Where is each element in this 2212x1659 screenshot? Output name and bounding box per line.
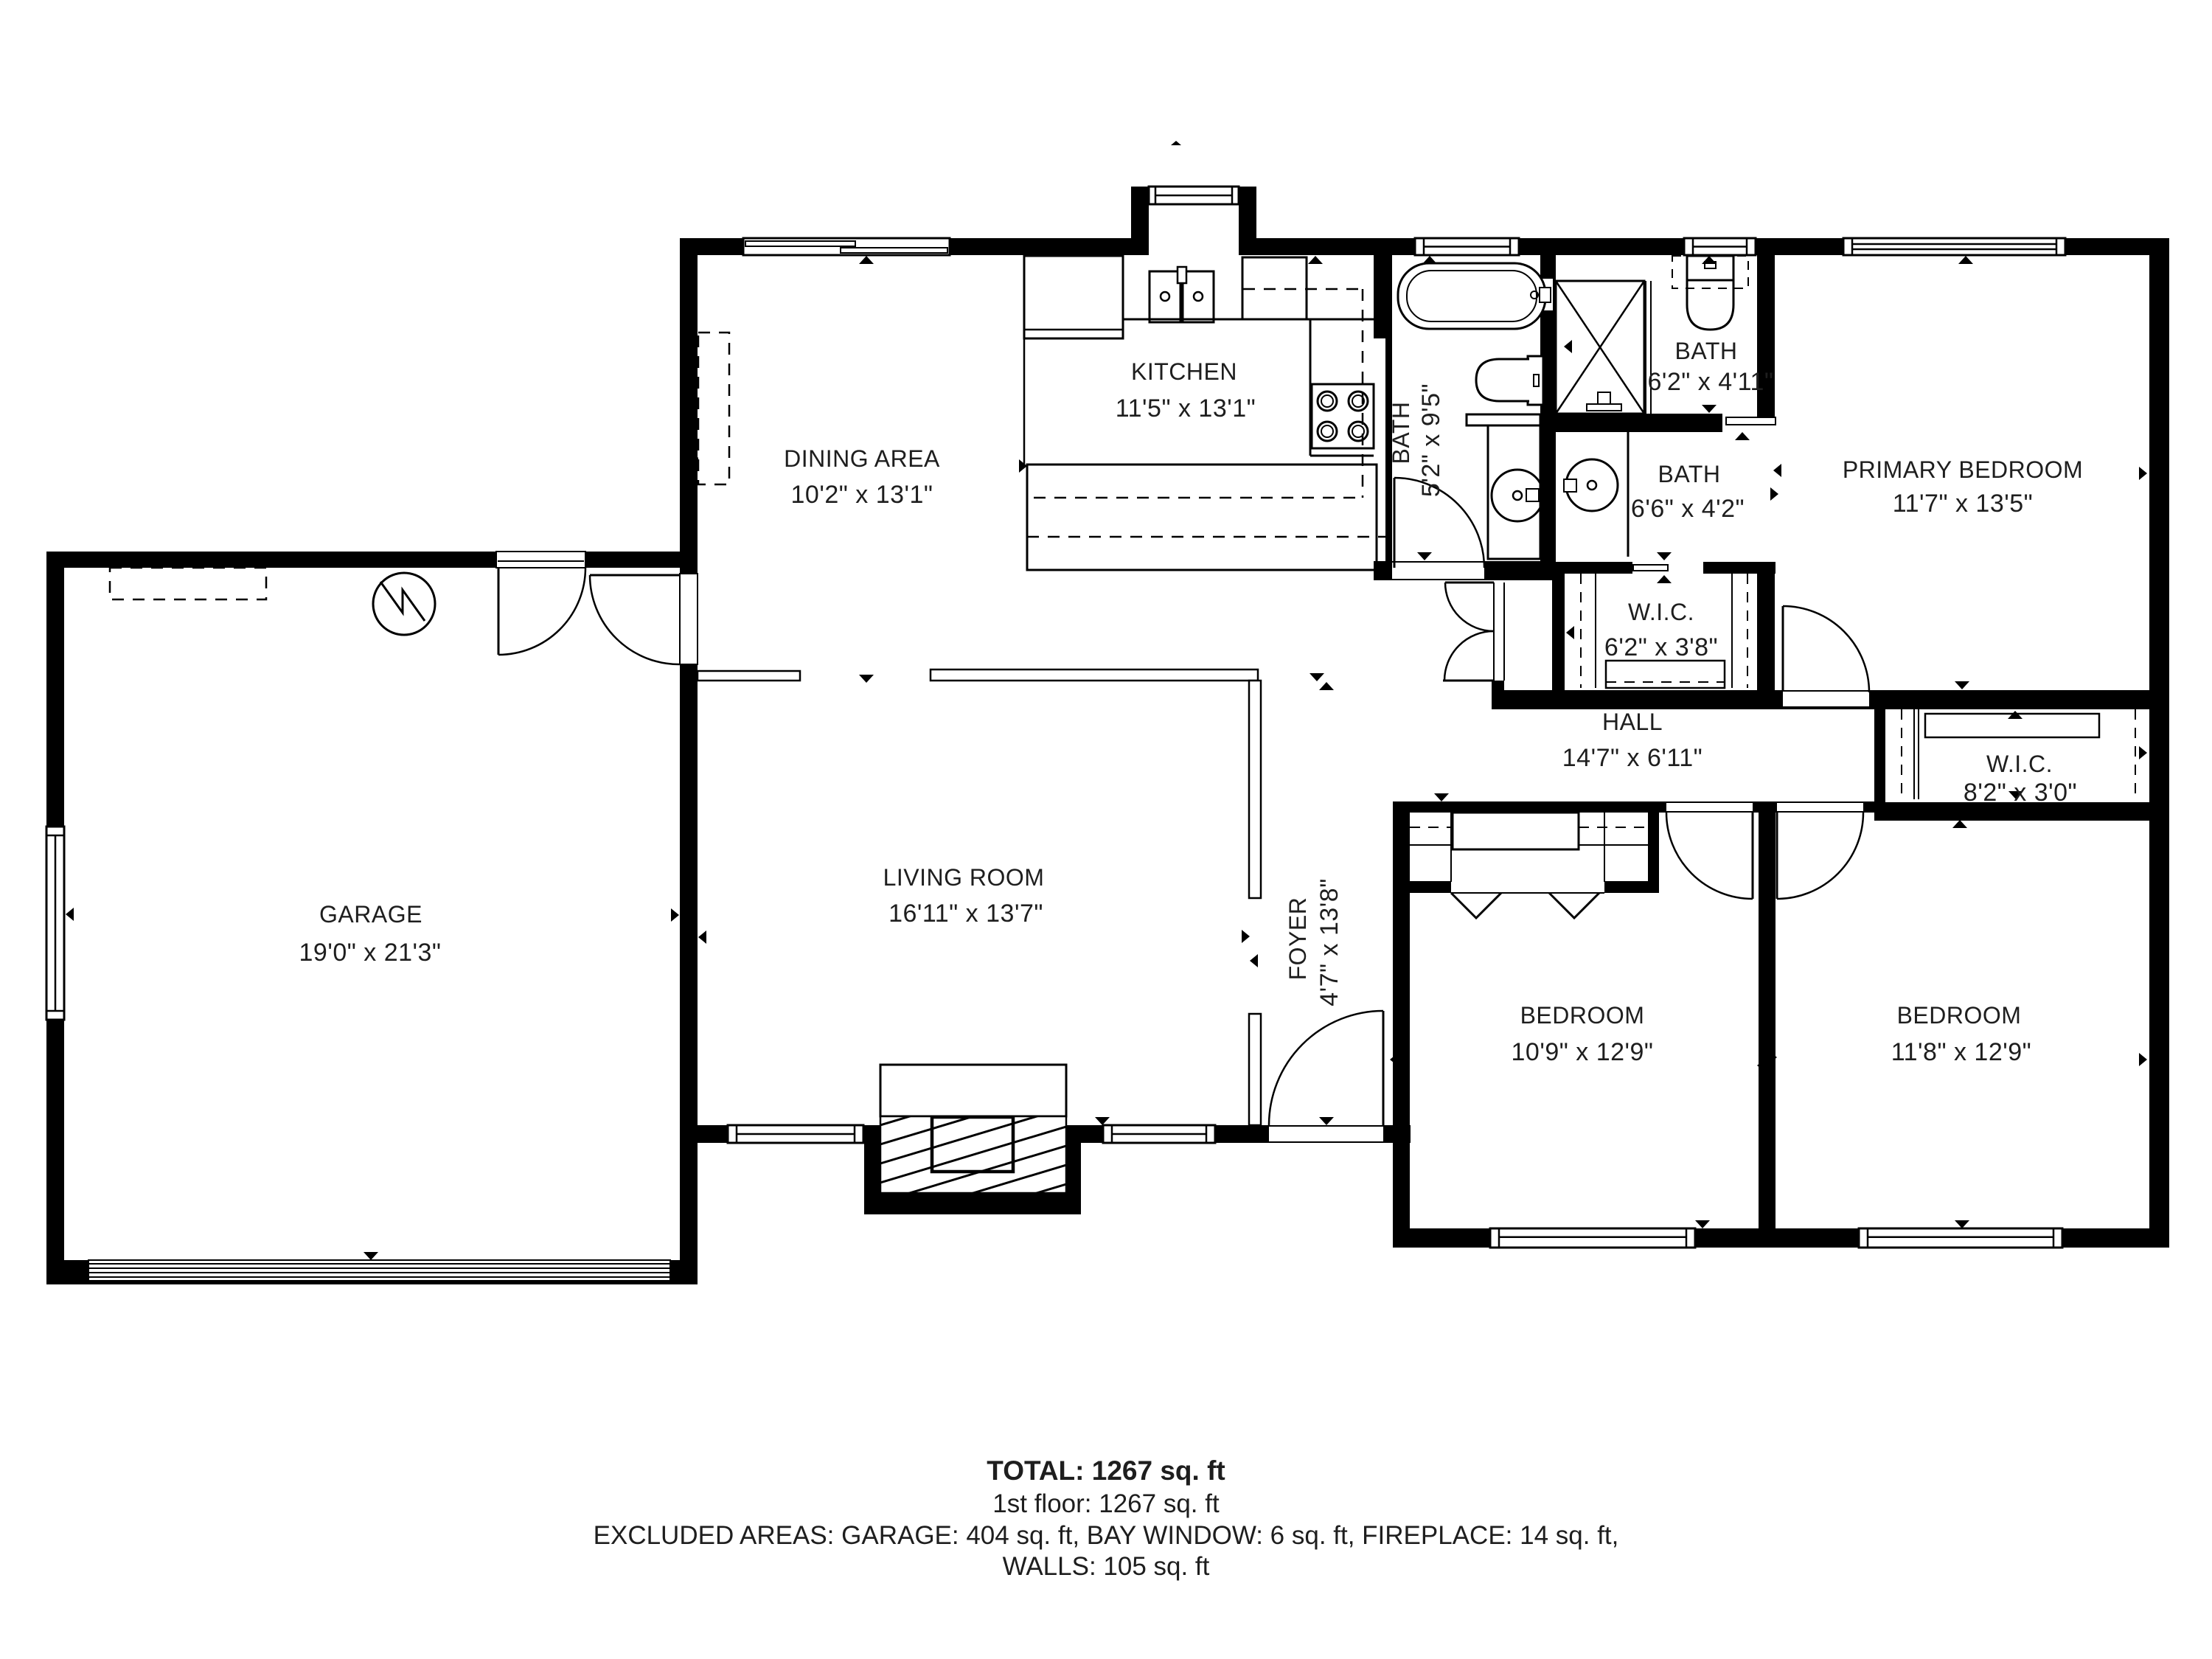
svg-text:6'6" x 4'2": 6'6" x 4'2"	[1631, 495, 1745, 523]
svg-text:10'9" x 12'9": 10'9" x 12'9"	[1512, 1038, 1654, 1066]
svg-text:W.I.C.: W.I.C.	[1986, 751, 2053, 777]
svg-text:BATH: BATH	[1388, 402, 1414, 465]
svg-text:4'7" x 13'8": 4'7" x 13'8"	[1315, 878, 1343, 1006]
svg-text:BEDROOM: BEDROOM	[1897, 1002, 2022, 1029]
svg-text:1st floor: 1267 sq. ft: 1st floor: 1267 sq. ft	[992, 1489, 1220, 1518]
svg-text:WALLS: 105 sq. ft: WALLS: 105 sq. ft	[1003, 1552, 1210, 1581]
svg-text:FOYER: FOYER	[1284, 897, 1311, 981]
svg-text:11'5" x 13'1": 11'5" x 13'1"	[1116, 394, 1256, 422]
svg-text:BATH: BATH	[1658, 461, 1721, 487]
svg-text:19'0" x 21'3": 19'0" x 21'3"	[299, 939, 442, 967]
svg-text:HALL: HALL	[1602, 709, 1663, 735]
svg-text:DINING AREA: DINING AREA	[784, 445, 940, 472]
svg-text:11'8" x 12'9": 11'8" x 12'9"	[1891, 1038, 2031, 1066]
svg-text:BATH: BATH	[1675, 338, 1738, 364]
svg-text:LIVING ROOM: LIVING ROOM	[883, 864, 1045, 891]
svg-text:11'7" x 13'5": 11'7" x 13'5"	[1893, 490, 2033, 518]
svg-text:6'2" x 4'11": 6'2" x 4'11"	[1647, 368, 1773, 396]
svg-text:KITCHEN: KITCHEN	[1131, 358, 1237, 385]
svg-text:10'2" x 13'1": 10'2" x 13'1"	[791, 481, 933, 509]
svg-text:6'2" x 3'8": 6'2" x 3'8"	[1604, 633, 1718, 661]
svg-text:EXCLUDED AREAS: GARAGE: 404 sq: EXCLUDED AREAS: GARAGE: 404 sq. ft, BAY …	[594, 1521, 1619, 1550]
svg-text:5'2" x 9'5": 5'2" x 9'5"	[1417, 383, 1445, 497]
svg-text:16'11" x 13'7": 16'11" x 13'7"	[888, 900, 1043, 928]
svg-text:W.I.C.: W.I.C.	[1628, 599, 1694, 625]
svg-text:PRIMARY BEDROOM: PRIMARY BEDROOM	[1843, 456, 2083, 483]
svg-text:GARAGE: GARAGE	[319, 901, 422, 928]
svg-text:BEDROOM: BEDROOM	[1520, 1002, 1645, 1029]
svg-text:14'7" x 6'11": 14'7" x 6'11"	[1562, 744, 1703, 772]
svg-text:TOTAL: 1267 sq. ft: TOTAL: 1267 sq. ft	[987, 1455, 1225, 1486]
svg-text:8'2" x 3'0": 8'2" x 3'0"	[1964, 779, 2077, 807]
